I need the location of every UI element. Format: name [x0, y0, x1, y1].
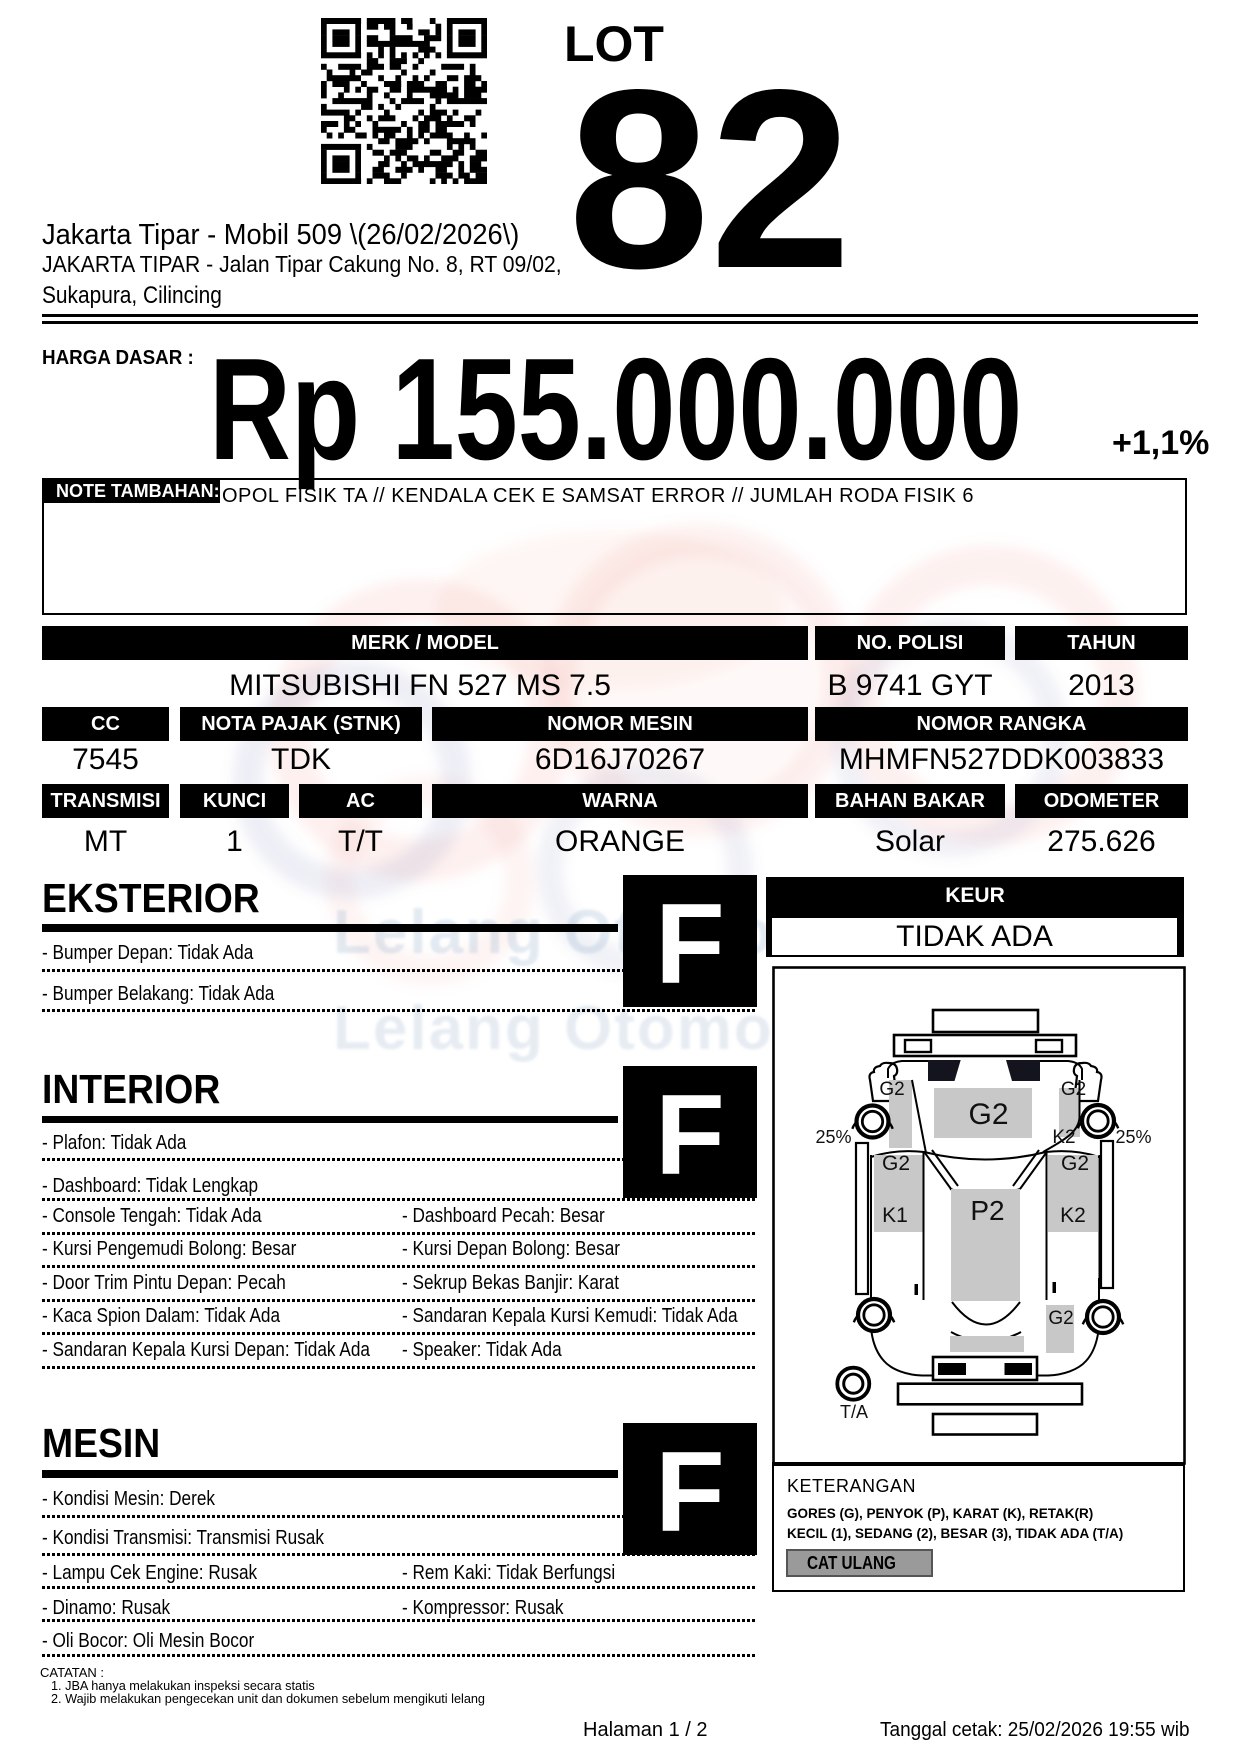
- svg-text:Lelang Otomotif: Lelang Otomotif: [333, 994, 838, 1063]
- svg-text:G2: G2: [879, 1079, 904, 1100]
- svg-text:G2: G2: [882, 1152, 910, 1175]
- svg-text:G2: G2: [1061, 1079, 1086, 1100]
- svg-text:T/A: T/A: [840, 1402, 868, 1422]
- svg-text:G2: G2: [968, 1098, 1008, 1131]
- svg-text:G2: G2: [1061, 1152, 1089, 1175]
- svg-text:P2: P2: [970, 1195, 1004, 1226]
- svg-text:K2: K2: [1052, 1127, 1075, 1148]
- svg-text:25%: 25%: [1115, 1127, 1151, 1147]
- svg-text:K2: K2: [1060, 1204, 1086, 1227]
- svg-text:25%: 25%: [815, 1127, 851, 1147]
- svg-text:K1: K1: [882, 1204, 908, 1227]
- svg-text:G2: G2: [1048, 1308, 1073, 1329]
